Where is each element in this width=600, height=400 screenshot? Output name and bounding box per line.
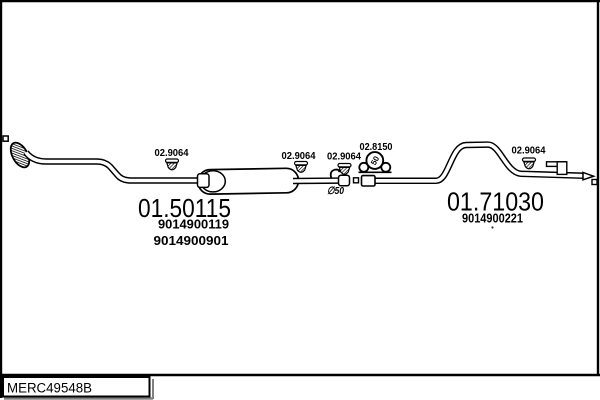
right-joint-marker <box>592 180 597 185</box>
tail-bracket-sleeve <box>557 162 567 175</box>
hanger-label: 02.9064 <box>512 145 546 157</box>
drawing-code-box: MERC49548B <box>3 377 154 400</box>
pipe-sleeve-connector <box>362 176 376 186</box>
rear-pipe <box>362 145 594 186</box>
mid-joint-marker <box>354 178 359 183</box>
rubber-hanger-icon <box>523 158 536 169</box>
rubber-hanger-icon <box>295 162 308 173</box>
tailpipe-tip <box>583 172 594 179</box>
hanger-label: 02.9064 <box>282 150 316 162</box>
inlet-collar <box>198 174 210 188</box>
rubber-hanger-icon <box>338 164 351 175</box>
front-oe-number: 9014900119 <box>158 217 229 232</box>
clamp-icon: 50 <box>359 152 392 172</box>
rubber-hanger-icon <box>166 159 179 170</box>
clamp-label: 02.8150 <box>360 141 393 153</box>
drawing-code-label: MERC49548B <box>7 381 92 396</box>
exhaust-diagram: 50 02.9064 02.9064 02.9064 02.9064 02.81… <box>0 0 600 400</box>
speck <box>491 226 493 228</box>
hanger-label: 02.9064 <box>327 151 361 163</box>
rear-oe-number: 9014900221 <box>462 211 523 226</box>
hanger-label: 02.9064 <box>155 147 189 159</box>
pipe-diameter-label: ∅50 <box>327 185 344 197</box>
exhaust-diagram-sheet: 50 02.9064 02.9064 02.9064 02.9064 02.81… <box>0 0 600 400</box>
front-oe-number: 9014900901 <box>154 233 229 248</box>
left-joint-marker <box>3 136 8 141</box>
